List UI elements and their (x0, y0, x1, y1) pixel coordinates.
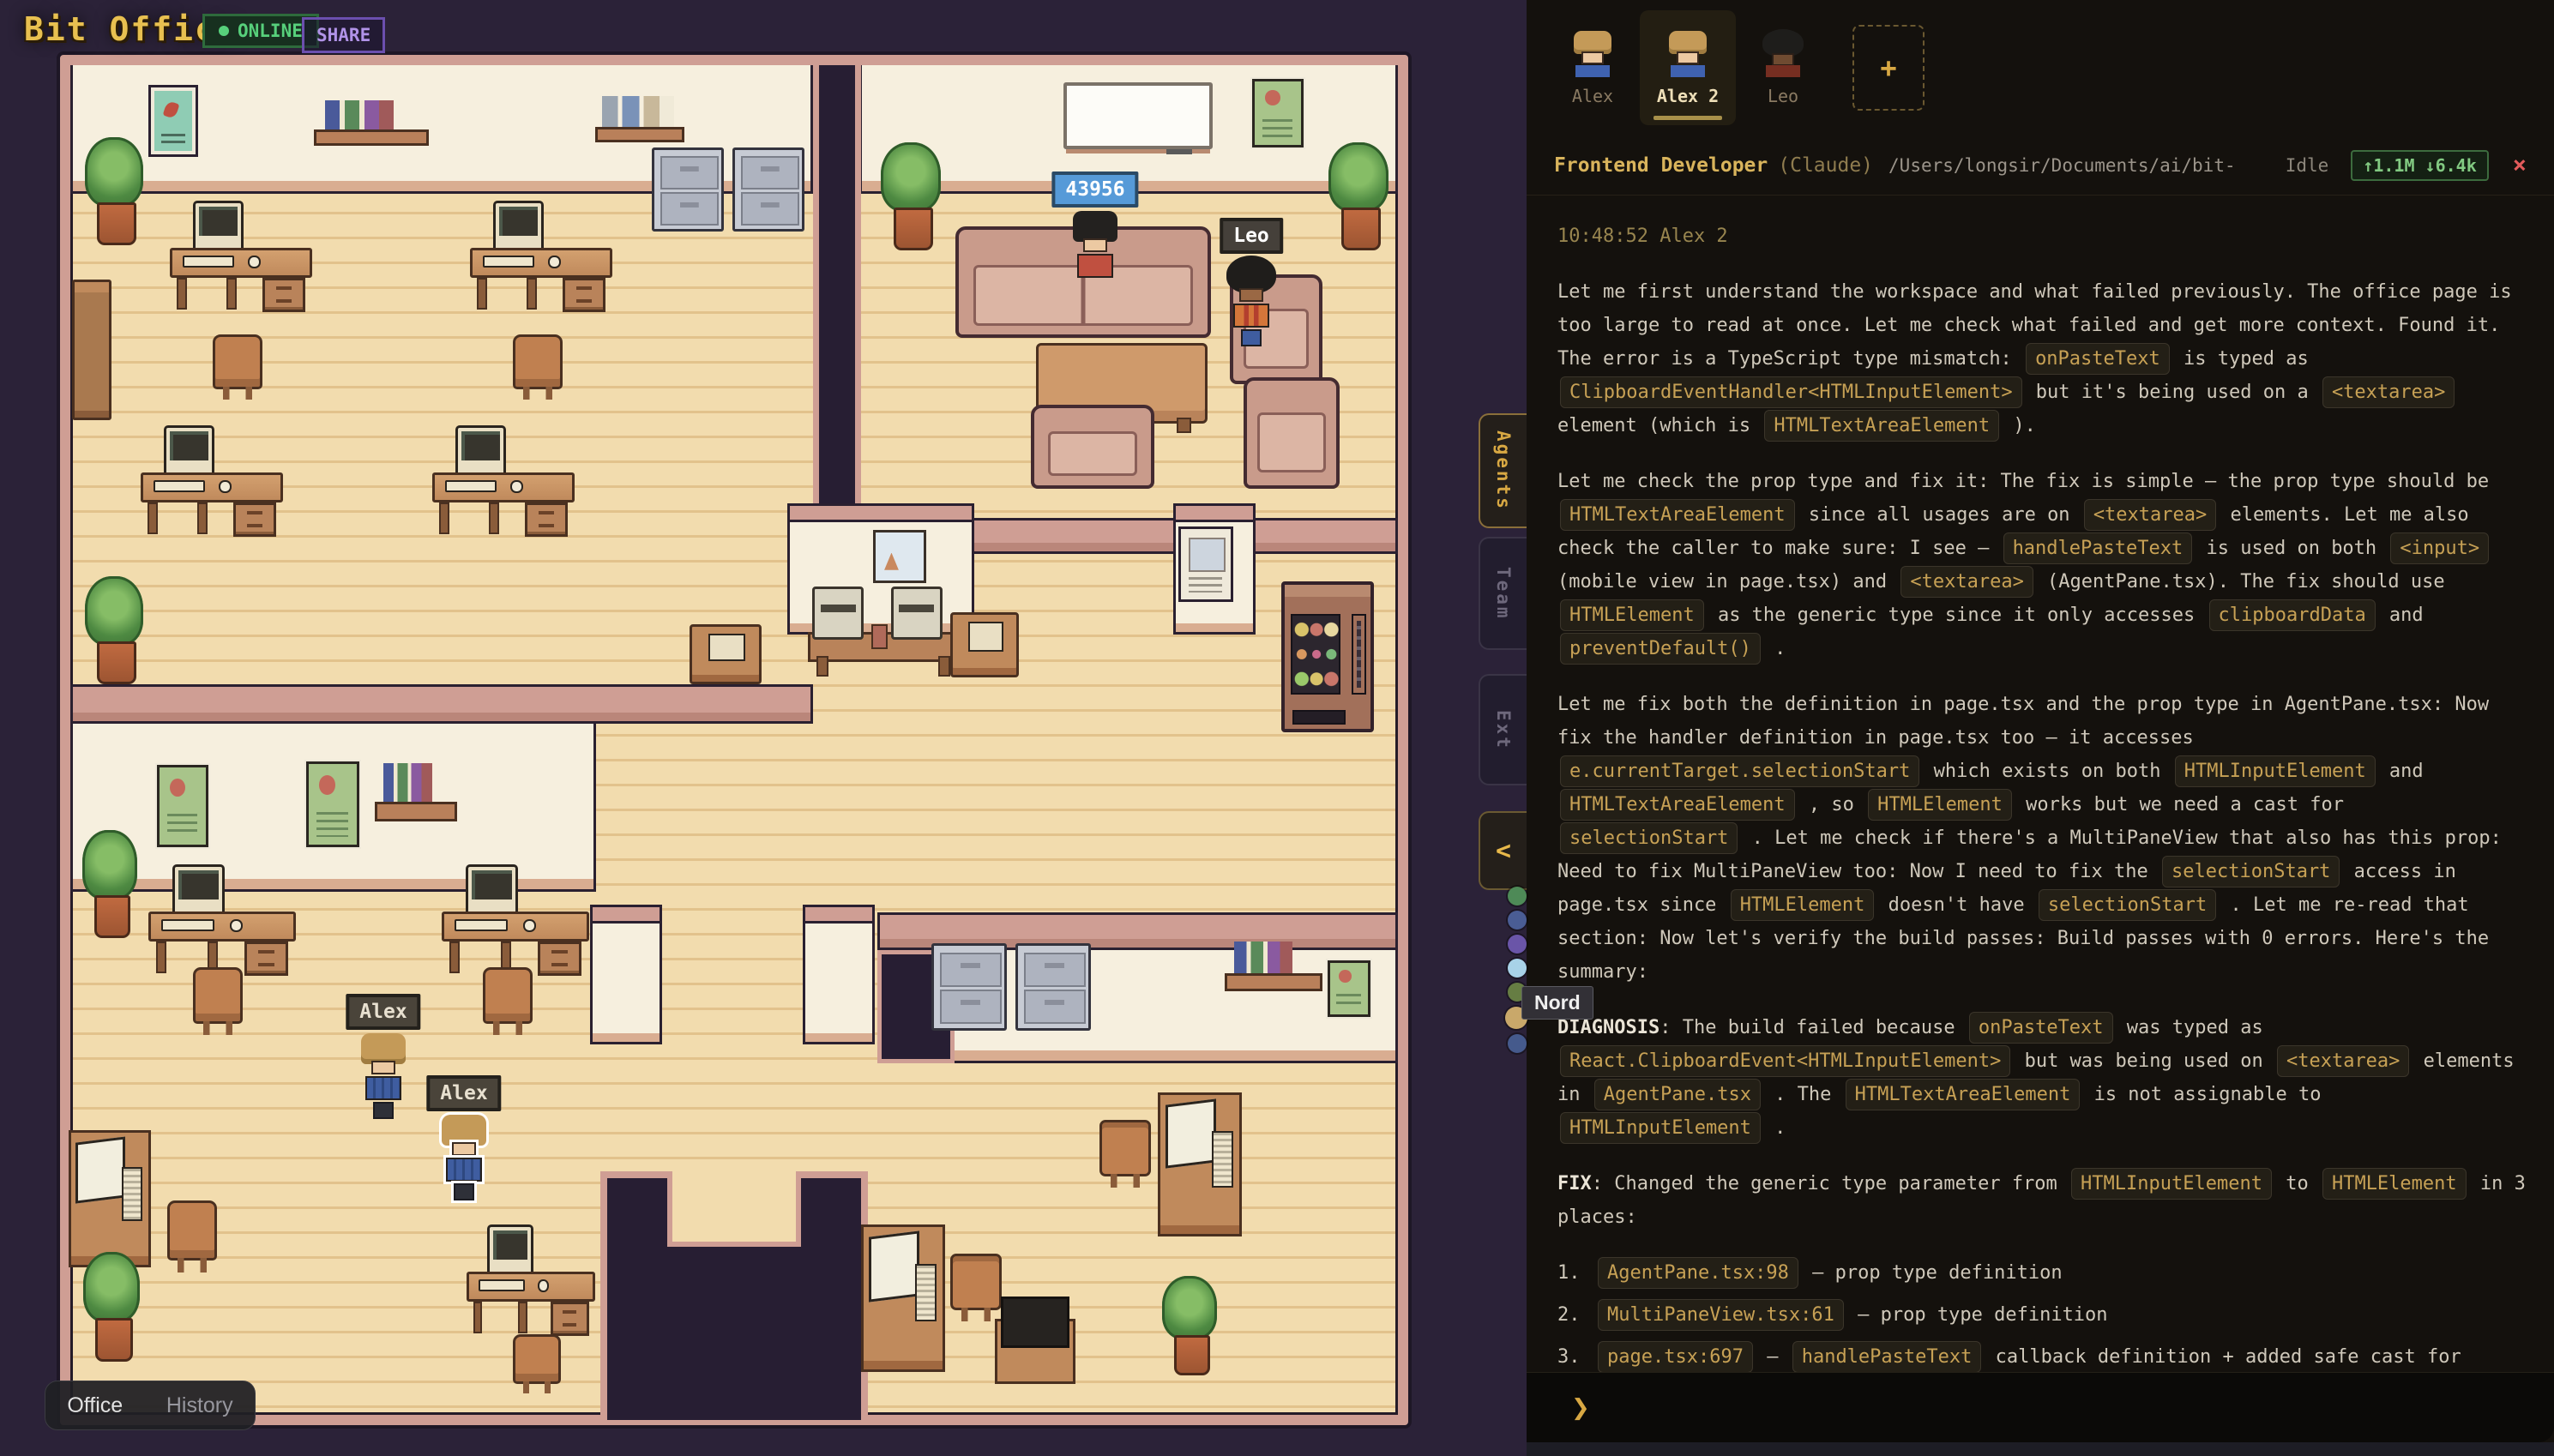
message-text: (mobile view in page.tsx) and (1557, 571, 1898, 593)
message-text: . (1763, 638, 1786, 659)
bold-label: DIAGNOSIS (1557, 1017, 1659, 1038)
code-chip: handlePasteText (2003, 532, 2193, 564)
poster-sm (306, 761, 359, 847)
message-text: ). (2002, 415, 2036, 436)
stubwall (590, 916, 662, 1044)
cabinet (652, 147, 724, 232)
list-item-text: MultiPaneView.tsx:61 — prop type definit… (1595, 1298, 2108, 1332)
agent-model: (Claude) (1778, 154, 1873, 177)
changed-files-list: 1.AgentPane.tsx:98 — prop type definitio… (1557, 1256, 2530, 1372)
pic-sm (873, 530, 926, 583)
online-dot-icon (219, 26, 229, 36)
agent-avatar (1568, 29, 1617, 79)
list-item-text: page.tsx:697 — handlePasteText callback … (1595, 1340, 2530, 1372)
plant (1161, 1276, 1218, 1375)
add-agent-button[interactable]: + (1852, 25, 1925, 111)
message-text: Let me fix both the definition in page.t… (1557, 694, 2489, 749)
message-text: but it's being used on a (2025, 382, 2320, 403)
message-text: since all usages are on (1798, 504, 2081, 526)
chat-paragraph: Let me check the prop type and fix it: T… (1557, 465, 2530, 665)
poster-frame (1178, 526, 1233, 602)
chair (950, 1254, 1002, 1310)
code-chip: HTMLInputElement (2071, 1168, 2272, 1200)
character-name-tag: Alex (346, 994, 420, 1030)
list-item: 2.MultiPaneView.tsx:61 — prop type defin… (1557, 1298, 2530, 1332)
code-chip: HTMLElement (1868, 789, 2012, 821)
code-chip: HTMLInputElement (1560, 1112, 1761, 1144)
message-text: which exists on both (1922, 761, 2172, 782)
stool (193, 967, 243, 1024)
code-chip: <textarea> (2084, 499, 2216, 531)
code-chip: React.ClipboardEvent<HTMLInputElement> (1560, 1045, 2010, 1077)
presence-dot[interactable] (1508, 887, 1527, 905)
desk-pc (470, 201, 612, 312)
stool (213, 334, 262, 389)
chat-paragraph: Let me first understand the workspace an… (1557, 275, 2530, 442)
code-chip: HTMLTextAreaElement (1560, 789, 1795, 821)
list-item: 3.page.tsx:697 — handlePasteText callbac… (1557, 1340, 2530, 1372)
message-text: . The (1763, 1084, 1843, 1105)
desk-pc (170, 201, 312, 312)
poster-sm (1252, 79, 1304, 147)
message-timestamp: 10:48:52 Alex 2 (1557, 220, 2530, 253)
code-chip: AgentPane.tsx:98 (1598, 1257, 1798, 1289)
list-number: 3. (1557, 1340, 1595, 1372)
code-chip: page.tsx:697 (1598, 1341, 1753, 1372)
chat-paragraph: FIX: Changed the generic type parameter … (1557, 1167, 2530, 1234)
message-text: is not assignable to (2082, 1084, 2321, 1105)
message-text: (AgentPane.tsx). The fix should use (2036, 571, 2445, 593)
side-tab-ext[interactable]: Ext (1479, 674, 1527, 785)
code-chip: HTMLTextAreaElement (1764, 410, 1999, 442)
cabinet (1015, 943, 1091, 1031)
panel-footer (1527, 1442, 2554, 1456)
message-text: , so (1798, 794, 1865, 815)
armchair (1244, 377, 1340, 489)
desk-pc (432, 425, 575, 537)
side-tab-agents[interactable]: Agents (1479, 413, 1527, 528)
code-chip: <input> (2390, 532, 2489, 564)
whiteboard (1063, 82, 1213, 149)
code-chip: ClipboardEventHandler<HTMLInputElement> (1560, 376, 2022, 408)
desk-laptop (690, 624, 762, 684)
side-tab-team[interactable]: Team (1479, 537, 1527, 650)
message-composer[interactable]: ❯ (1527, 1372, 2554, 1442)
agent-tab-label: Alex 2 (1657, 86, 1719, 106)
message-text: is used on both (2195, 538, 2388, 559)
agent-tab-label: Leo (1768, 86, 1798, 106)
side-tab-strip: AgentsTeamExt < (1479, 413, 1527, 890)
message-text: . (1763, 1117, 1786, 1139)
bold-label: FIX (1557, 1173, 1592, 1194)
agent-tab-label: Alex (1572, 86, 1613, 106)
code-chip: HTMLTextAreaElement (1846, 1079, 2081, 1110)
view-switcher: Office History (45, 1381, 256, 1430)
message-text: but was being used on (2013, 1050, 2274, 1072)
plant (84, 576, 144, 684)
message-text: to (2274, 1173, 2320, 1194)
message-text: — (1756, 1346, 1790, 1368)
code-chip: preventDefault() (1560, 633, 1761, 665)
plant (82, 1252, 141, 1362)
desk-pc (148, 864, 296, 976)
code-chip: handlePasteText (1792, 1341, 1982, 1372)
agent-chat-log[interactable]: 10:48:52 Alex 2Let me first understand t… (1527, 196, 2554, 1372)
message-text: callback definition + added safe cast fo… (1984, 1346, 2461, 1368)
tab-office[interactable]: Office (67, 1393, 123, 1418)
cabinet (732, 147, 804, 232)
agent-tab-leo[interactable]: Leo (1746, 10, 1820, 125)
character-43956[interactable]: 43956 (1070, 211, 1120, 300)
code-chip: HTMLTextAreaElement (1560, 499, 1795, 531)
list-item: 1.AgentPane.tsx:98 — prop type definitio… (1557, 1256, 2530, 1290)
message-text: works but we need a cast for (2015, 794, 2344, 815)
desk-pc (442, 864, 589, 976)
code-chip: e.currentTarget.selectionStart (1560, 755, 1919, 787)
poster-teal (151, 87, 196, 154)
code-chip: selectionStart (2162, 856, 2340, 887)
code-chip: HTMLElement (1731, 889, 1875, 921)
code-chip: HTMLElement (2322, 1168, 2467, 1200)
chevron-left-icon: < (1496, 836, 1511, 866)
message-text: : Changed the generic type parameter fro… (1592, 1173, 2069, 1194)
code-chip: onPasteText (2026, 343, 2170, 375)
shelf-books (375, 760, 457, 821)
code-chip: MultiPaneView.tsx:61 (1598, 1299, 1844, 1331)
message-text: — prop type definition (1846, 1304, 2108, 1326)
code-chip: <textarea> (2322, 376, 2455, 408)
character-leo[interactable]: Leo (1226, 257, 1276, 346)
plant (84, 137, 144, 245)
tab-history[interactable]: History (166, 1393, 233, 1418)
character-name-tag: Leo (1220, 218, 1283, 254)
agent-tab-alex-2[interactable]: Alex 2 (1640, 10, 1736, 125)
voidv (813, 65, 861, 520)
presence-dot[interactable] (1508, 1034, 1527, 1053)
message-text: as the generic type since it only access… (1707, 605, 2207, 626)
chat-paragraph: Let me fix both the definition in page.t… (1557, 688, 2530, 989)
desk-laptop (950, 612, 1019, 677)
agents-bar: AlexAlex 2Leo+ (1527, 0, 2554, 135)
stool (483, 967, 533, 1024)
code-chip: HTMLElement (1560, 599, 1704, 631)
plant (880, 142, 942, 250)
desk-side (1158, 1092, 1242, 1236)
code-chip: <textarea> (2277, 1045, 2409, 1077)
online-status-label: ONLINE (238, 21, 303, 41)
close-icon[interactable]: × (2513, 152, 2527, 178)
plant (1328, 142, 1389, 250)
code-chip: AgentPane.tsx (1594, 1079, 1761, 1110)
tongue (667, 1171, 801, 1247)
collapse-panel-button[interactable]: < (1479, 811, 1527, 890)
desk-pc (467, 1224, 595, 1336)
code-chip: <textarea> (1900, 566, 2033, 598)
message-text: and (2378, 605, 2424, 626)
code-chip: HTMLInputElement (2175, 755, 2376, 787)
agent-avatar (1758, 29, 1808, 79)
agent-panel: AlexAlex 2Leo+ Frontend Developer (Claud… (1527, 0, 2554, 1456)
code-chip: selectionStart (2039, 889, 2216, 921)
stool (513, 334, 563, 389)
agent-header: Frontend Developer (Claude) /Users/longs… (1527, 135, 2554, 196)
shelf-books (314, 98, 429, 146)
wallband (70, 684, 813, 724)
presence-dot[interactable] (1508, 911, 1527, 930)
message-text: Let me check the prop type and fix it: T… (1557, 471, 2489, 492)
desk-pc (141, 425, 283, 537)
character-name-tag: 43956 (1051, 171, 1138, 208)
message-text: and (2378, 761, 2424, 782)
message-text: was typed as (2116, 1017, 2263, 1038)
token-usage-badge: ↑1.1M ↓6.4k (2351, 150, 2488, 181)
presence-tooltip: Nord (1521, 986, 1593, 1020)
message-text: is typed as (2172, 348, 2309, 370)
code-chip: onPasteText (1969, 1012, 2113, 1044)
chair (1099, 1120, 1151, 1176)
stubwall (803, 916, 875, 1044)
agent-workspace-path: /Users/longsir/Documents/ai/bit- (1888, 155, 2236, 176)
desk-side (861, 1224, 945, 1372)
message-text: : The build failed because (1659, 1017, 1967, 1038)
message-text: — prop type definition (1801, 1262, 2063, 1284)
plant (81, 830, 138, 938)
character-alex[interactable]: Alex (439, 1115, 489, 1204)
code-chip: selectionStart (1560, 822, 1738, 854)
presence-dot[interactable] (1508, 935, 1527, 954)
character-name-tag: Alex (426, 1075, 501, 1111)
shelf-books (1225, 938, 1322, 991)
poster-sm (157, 765, 208, 847)
list-item-text: AgentPane.tsx:98 — prop type definition (1595, 1256, 2063, 1290)
character-alex[interactable]: Alex (358, 1033, 408, 1122)
stool (513, 1334, 561, 1384)
code-chip: clipboardData (2209, 599, 2376, 631)
poster-sm (1328, 960, 1370, 1017)
presence-dots (1508, 887, 1527, 1058)
chat-paragraph: DIAGNOSIS: The build failed because onPa… (1557, 1011, 2530, 1145)
presence-dot[interactable] (1508, 959, 1527, 978)
tv (995, 1319, 1075, 1384)
tallcab (72, 280, 111, 420)
share-button[interactable]: SHARE (302, 17, 385, 53)
cabinet (931, 943, 1007, 1031)
shelf-city (595, 94, 684, 142)
stool (167, 1200, 217, 1260)
desk-side (69, 1130, 151, 1267)
sofa (1031, 405, 1154, 489)
prompt-icon: ❯ (1571, 1395, 1590, 1421)
message-text: element (which is (1557, 415, 1762, 436)
list-number: 2. (1557, 1298, 1595, 1332)
agent-role: Frontend Developer (1554, 154, 1768, 177)
vending (1281, 581, 1374, 732)
list-number: 1. (1557, 1256, 1595, 1290)
office-map[interactable]: 43956LeoAlexAlex Bit Office ONLINE SHARE… (0, 0, 1527, 1456)
agent-tab-alex[interactable]: Alex (1556, 10, 1629, 125)
agent-state: Idle (2286, 155, 2329, 176)
message-text: doesn't have (1876, 894, 2035, 916)
printer-table (808, 587, 959, 681)
agent-avatar (1663, 29, 1713, 79)
